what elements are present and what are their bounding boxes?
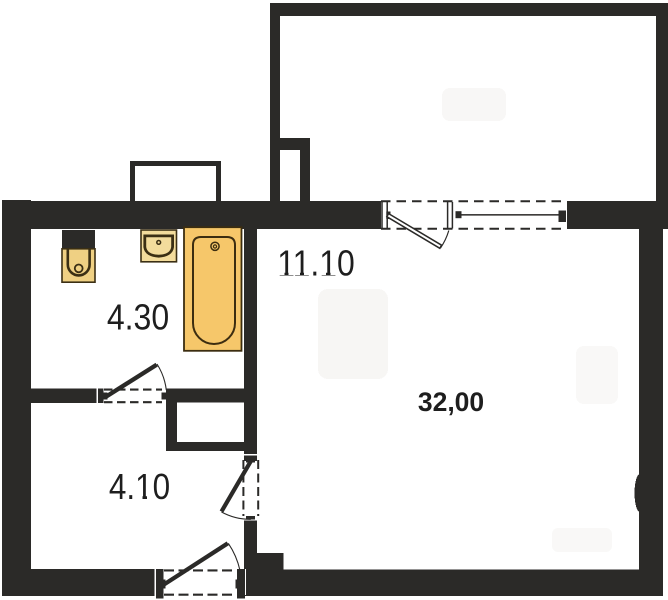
svg-text:4.10: 4.10 bbox=[109, 467, 170, 507]
svg-text:32,00: 32,00 bbox=[418, 387, 484, 417]
svg-text:11.10: 11.10 bbox=[277, 243, 355, 283]
svg-text:4.30: 4.30 bbox=[107, 298, 169, 338]
